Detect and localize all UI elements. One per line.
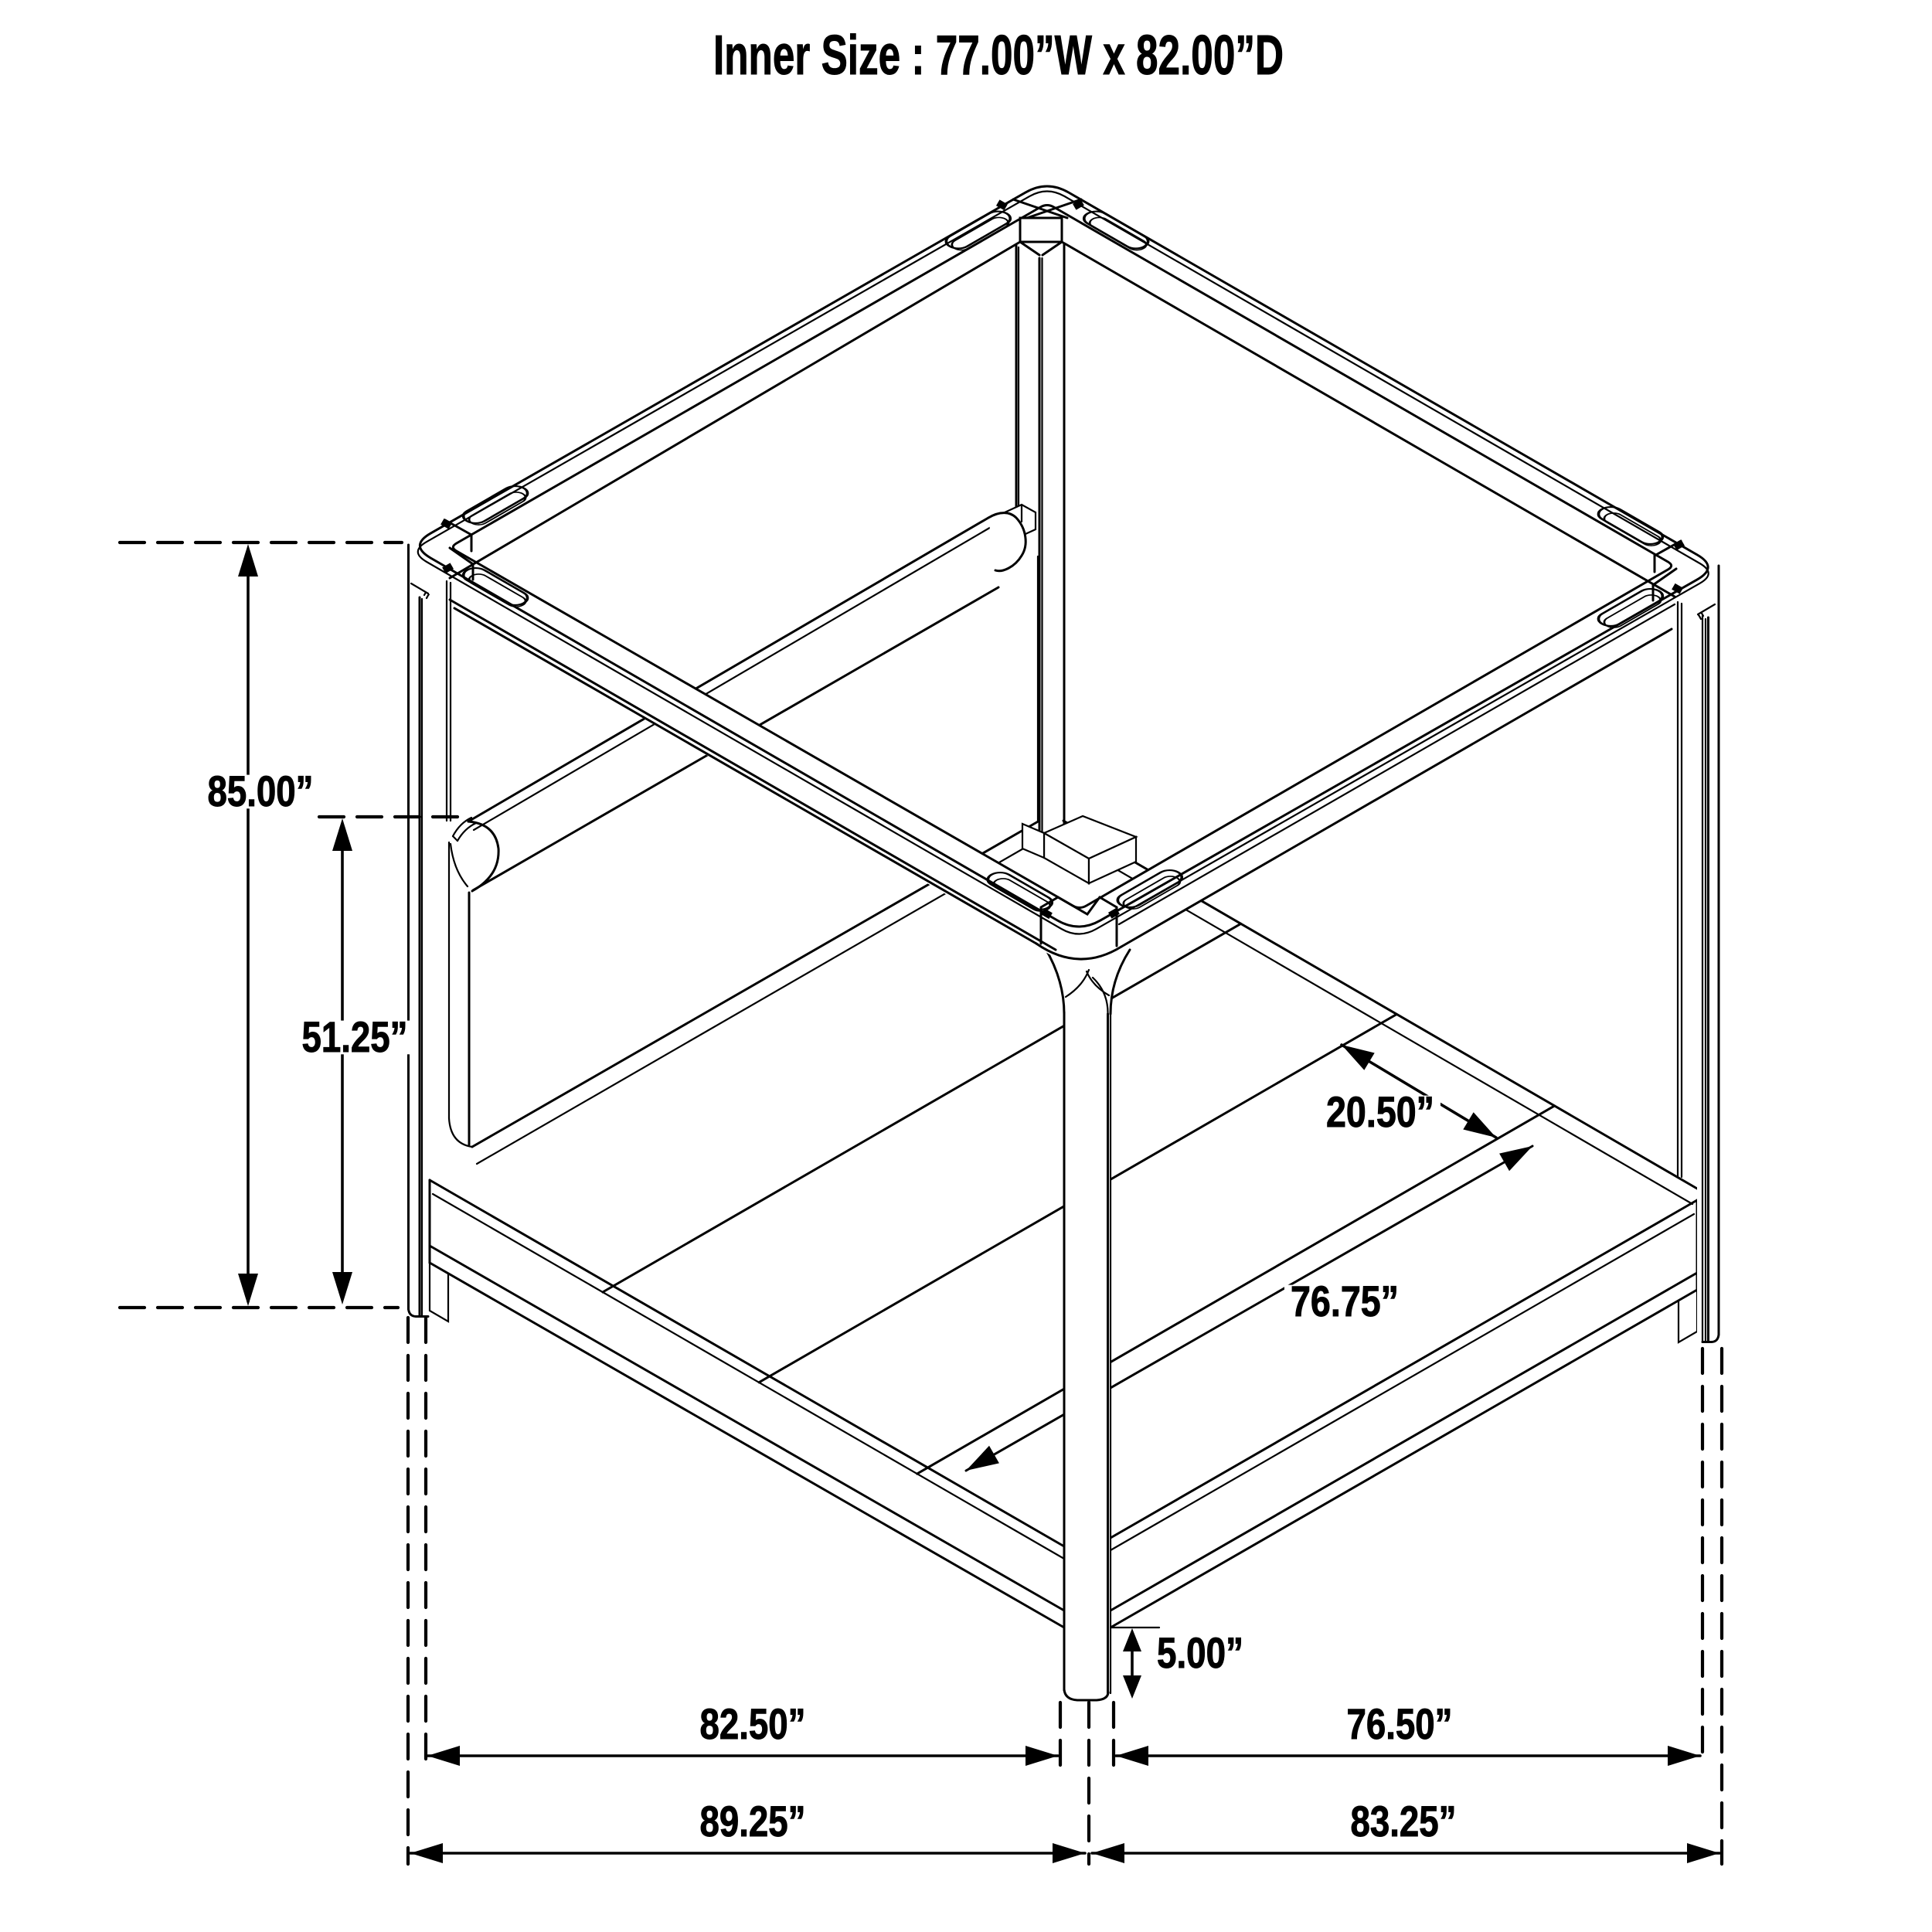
svg-text:83.25”: 83.25” bbox=[1351, 1797, 1457, 1845]
svg-text:5.00”: 5.00” bbox=[1157, 1628, 1243, 1677]
svg-text:76.75”: 76.75” bbox=[1291, 1277, 1399, 1325]
svg-text:76.50”: 76.50” bbox=[1347, 1699, 1453, 1748]
svg-text:51.25”: 51.25” bbox=[302, 1012, 408, 1061]
svg-text:82.50”: 82.50” bbox=[700, 1699, 806, 1748]
svg-text:Inner Size : 77.00”W x 82.00”D: Inner Size : 77.00”W x 82.00”D bbox=[713, 25, 1284, 87]
svg-text:89.25”: 89.25” bbox=[700, 1797, 806, 1845]
svg-text:20.50”: 20.50” bbox=[1326, 1087, 1434, 1136]
svg-text:85.00”: 85.00” bbox=[208, 767, 314, 815]
